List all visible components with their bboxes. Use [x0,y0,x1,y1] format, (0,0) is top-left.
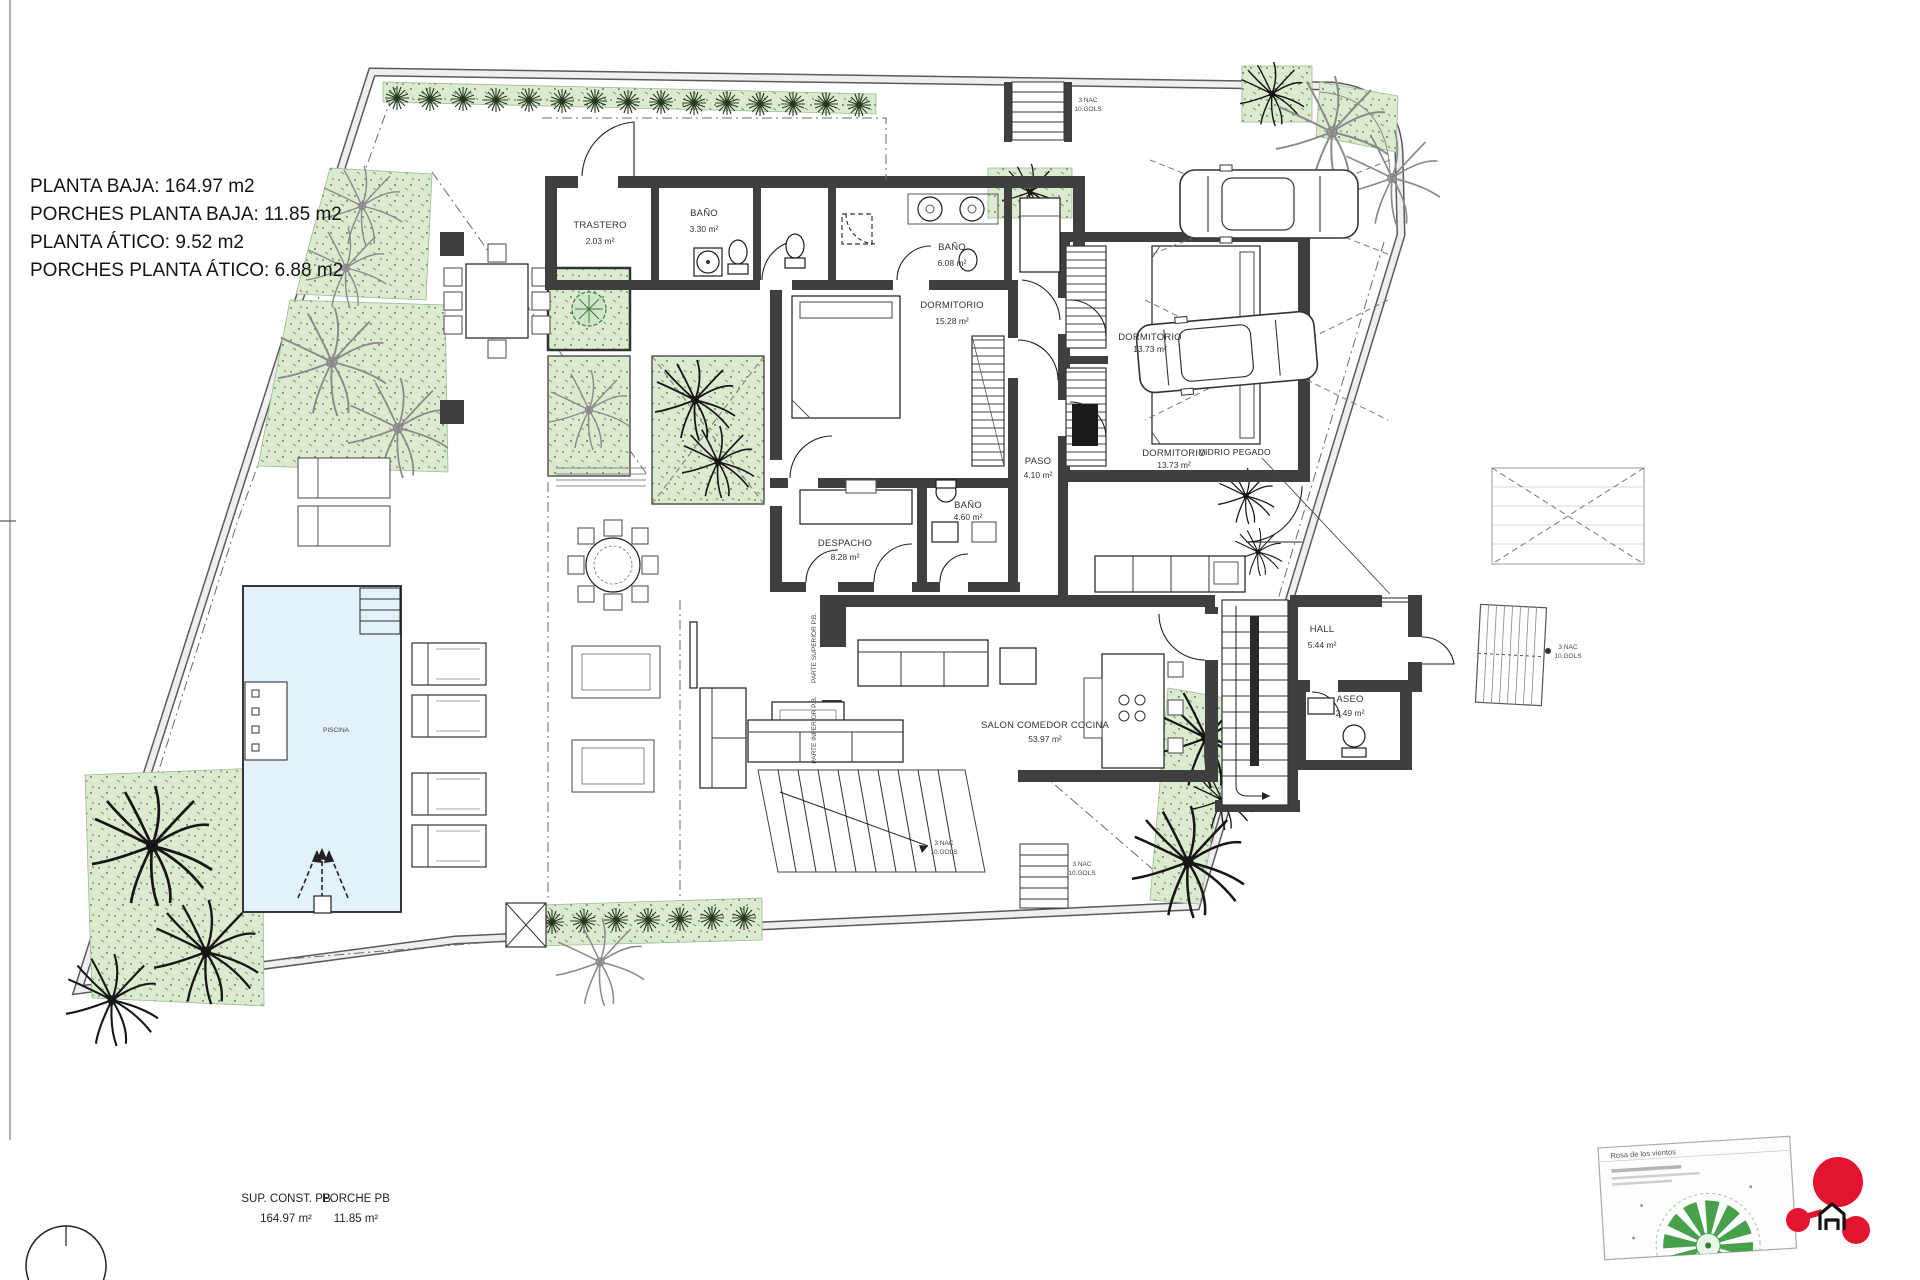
svg-text:3 NAC: 3 NAC [1072,861,1091,868]
pool-steps [360,588,400,634]
label-aseo: ASEO [1336,694,1363,705]
porch-sofas [556,468,660,792]
title-card: Rosa de los vientos [1598,1136,1799,1280]
page-edge-line [0,0,16,1140]
stair-porch-wide [758,770,985,872]
brand-logo [1786,1157,1870,1244]
svg-text:4.10 m²: 4.10 m² [1024,470,1053,480]
label-dormitorio-1528: DORMITORIO [920,300,984,311]
label-hall: HALL [1310,624,1335,635]
footer-col2-value: 11.85 m² [334,1213,379,1225]
label-salon: SALON COMEDOR COCINA [981,720,1110,731]
svg-text:53.97 m²: 53.97 m² [1028,734,1062,744]
north-indicator [26,1226,106,1280]
label-dormitorio-1373b: DORMITORIO [1142,448,1206,459]
svg-text:6.08 m²: 6.08 m² [938,258,967,268]
label-despacho: DESPACHO [818,538,872,549]
svg-text:PARTE SUPERIOR P.B.: PARTE SUPERIOR P.B. [811,613,818,683]
stair-bottom-right [1020,844,1068,908]
svg-text:3 NAC: 3 NAC [934,840,953,847]
svg-text:3.30 m²: 3.30 m² [690,224,719,234]
svg-text:8.28 m²: 8.28 m² [831,552,860,562]
overhang-dashes [542,118,886,180]
svg-text:4.60 m²: 4.60 m² [954,512,983,522]
svg-text:2.49 m²: 2.49 m² [1336,708,1365,718]
svg-text:10.GOLS: 10.GOLS [1074,106,1102,113]
summary-line-2: PORCHES PLANTA BAJA: 11.85 m2 [30,204,342,225]
label-bano-608: BAÑO [938,242,966,253]
living-room-furniture [690,622,1036,788]
terrace-planters [548,268,764,504]
label-paso: PASO [1025,456,1052,467]
footer-col2-label: PORCHE PB [322,1193,390,1205]
outdoor-dining-table [440,232,550,424]
footer-col1-value: 164.97 m² [260,1213,312,1225]
logo-house-icon [1820,1204,1844,1230]
label-dormitorio-1373a: DORMITORIO [1118,332,1182,343]
svg-text:3 NAC: 3 NAC [1078,97,1097,104]
label-vidrio-pegado: VIDRIO PEGADO [1199,447,1271,457]
svg-text:13.73 m²: 13.73 m² [1157,460,1191,470]
swimming-pool: PISCINA [243,586,401,913]
svg-text:2.03 m²: 2.03 m² [586,236,615,246]
floor-plan-canvas: PISCINA [0,0,1920,1280]
summary-line-4: PORCHES PLANTA ÁTICO: 6.88 m2 [30,260,343,281]
footer-col1-label: SUP. CONST. PB [241,1193,331,1205]
car-1 [1180,165,1358,243]
round-table [568,520,658,610]
gate-box [506,903,546,947]
label-bano-460: BAÑO [954,500,982,511]
stair-interior [1222,600,1288,805]
svg-text:10.GOLS: 10.GOLS [930,849,958,856]
footer-totals: SUP. CONST. PB 164.97 m² PORCHE PB 11.85… [241,1193,390,1225]
pool-ladder [245,682,287,760]
pergola-deck [1475,468,1644,706]
svg-text:PARTE INFERIOR P.B.: PARTE INFERIOR P.B. [811,696,818,763]
svg-text:5.44 m²: 5.44 m² [1308,640,1337,650]
pool-label: PISCINA [323,727,350,734]
svg-text:13.73 m²: 13.73 m² [1133,344,1167,354]
summary-block: PLANTA BAJA: 164.97 m2 PORCHES PLANTA BA… [30,176,343,281]
svg-text:10.GOLS: 10.GOLS [1554,653,1582,660]
stair-top-right [1004,82,1072,142]
summary-line-1: PLANTA BAJA: 164.97 m2 [30,176,255,197]
svg-text:10.GOLS: 10.GOLS [1068,870,1096,877]
svg-text:3 NAC: 3 NAC [1558,644,1577,651]
svg-text:15.28 m²: 15.28 m² [935,316,969,326]
label-trastero: TRASTERO [573,220,626,231]
label-bano-330: BAÑO [690,208,718,219]
summary-line-3: PLANTA ÁTICO: 9.52 m2 [30,232,244,253]
